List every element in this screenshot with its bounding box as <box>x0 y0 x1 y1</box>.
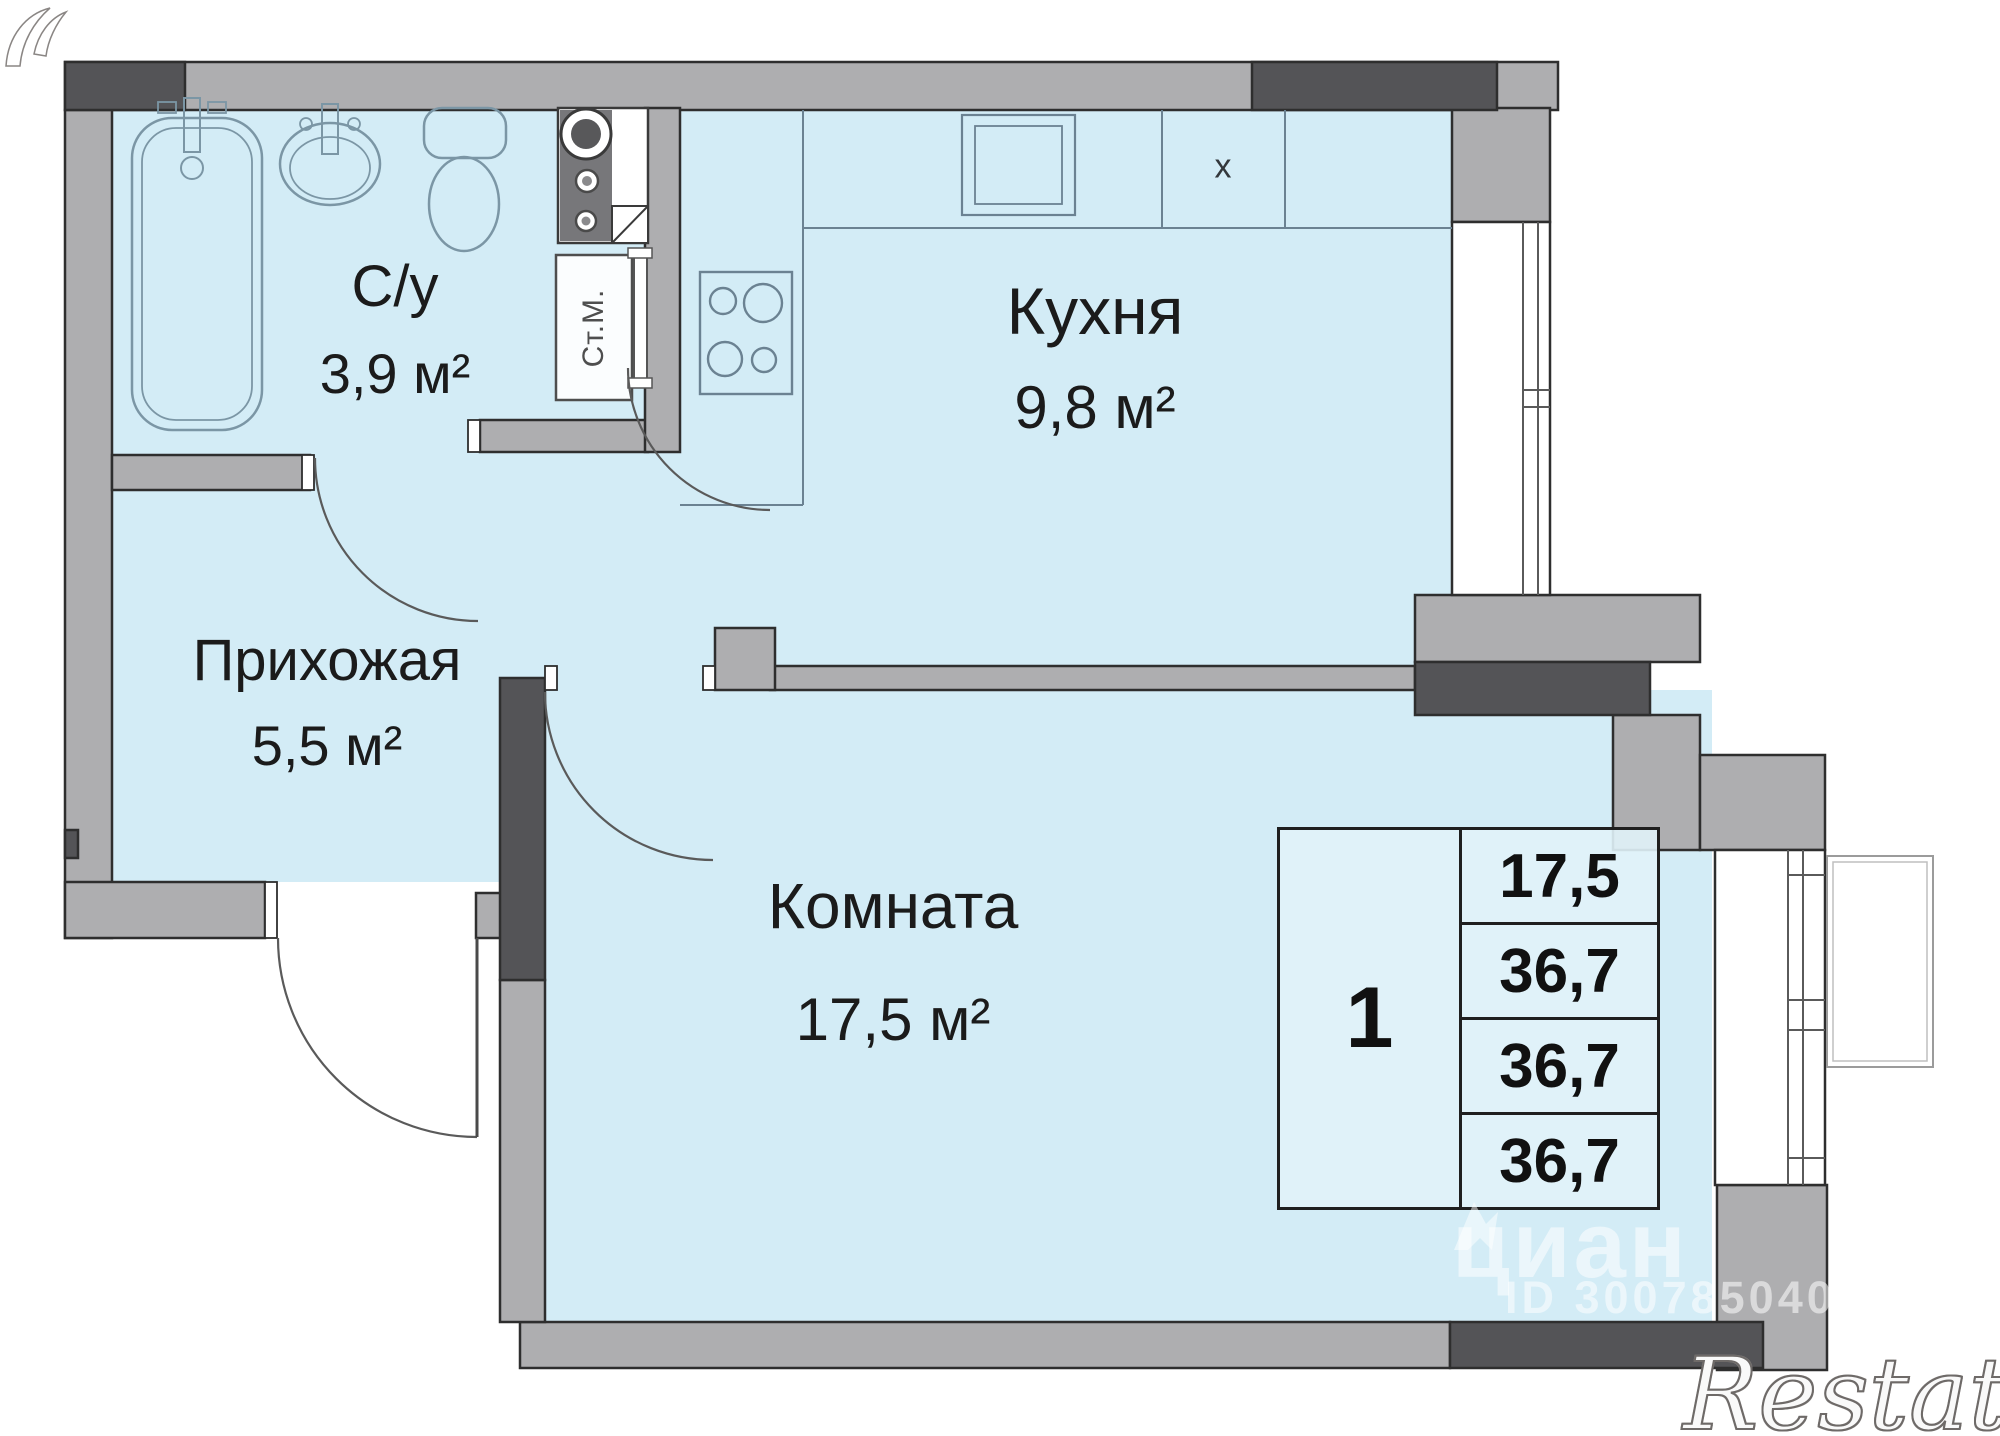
wall-room-left-lower <box>500 980 545 1322</box>
washing-machine-label: Ст.М. <box>577 289 611 368</box>
kitchen-name: Кухня <box>1007 278 1184 344</box>
living-room-area: 17,5 м² <box>768 990 1019 1050</box>
area-cell-total-2: 36,7 <box>1462 1017 1657 1112</box>
room-window <box>1715 850 1825 1185</box>
areas-column: 17,5 36,7 36,7 36,7 <box>1462 830 1657 1207</box>
kitchen-window <box>1452 222 1550 595</box>
wall-hallway-bottom <box>65 882 265 938</box>
living-room-label: Комната 17,5 м² <box>768 874 1019 1050</box>
room-doorway-floor <box>545 666 715 690</box>
wall-room-door-stub <box>715 628 775 690</box>
entry-door-arc <box>278 938 477 1137</box>
listing-id-watermark: ID 300785040 <box>1505 1272 1836 1324</box>
wall-room-left-dark <box>500 678 545 980</box>
wall-bath-kitchen-tbar <box>480 420 648 452</box>
area-cell-living: 17,5 <box>1462 830 1657 922</box>
wall-left <box>65 110 112 938</box>
kitchen-label: Кухня 9,8 м² <box>1007 278 1184 438</box>
hallway-label: Прихожая 5,5 м² <box>193 632 462 774</box>
wall-left-tick-dark <box>65 830 78 858</box>
bathroom-name: С/у <box>320 258 471 316</box>
floor-plan-canvas: С/у 3,9 м² Кухня 9,8 м² Прихожая 5,5 м² … <box>0 0 2000 1436</box>
bathroom-label: С/у 3,9 м² <box>320 258 471 402</box>
bathroom-area: 3,9 м² <box>320 346 471 402</box>
restate-watermark-text: Restate <box>1683 1345 2000 1436</box>
hallway-area: 5,5 м² <box>193 718 462 774</box>
kitchen-area: 9,8 м² <box>1007 378 1184 438</box>
apartment-info-table: 1 17,5 36,7 36,7 36,7 <box>1277 827 1660 1210</box>
cian-logo-icon <box>1452 1198 1502 1254</box>
wall-bay-column-outer <box>1700 755 1825 850</box>
rooms-count-cell: 1 <box>1280 830 1462 1207</box>
wall-top-dark-right <box>1252 62 1497 110</box>
hallway-name: Прихожая <box>193 632 462 690</box>
wall-kitchen-left <box>645 108 680 452</box>
balcony-outline <box>1827 856 1933 1067</box>
area-cell-total-1: 36,7 <box>1462 922 1657 1017</box>
wall-above-dark-bar <box>1415 595 1700 662</box>
restate-swoosh-icon <box>0 0 80 80</box>
water-heater-icon <box>558 108 648 243</box>
hob-marker-label: х <box>1215 148 1232 187</box>
wall-bathroom-bottom <box>112 455 310 490</box>
wall-kitchen-window-top <box>1452 108 1550 222</box>
wall-dark-bar-right <box>1415 662 1650 715</box>
wall-room-divider <box>770 666 1415 690</box>
wall-bottom <box>520 1322 1450 1368</box>
living-room-name: Комната <box>768 874 1019 938</box>
